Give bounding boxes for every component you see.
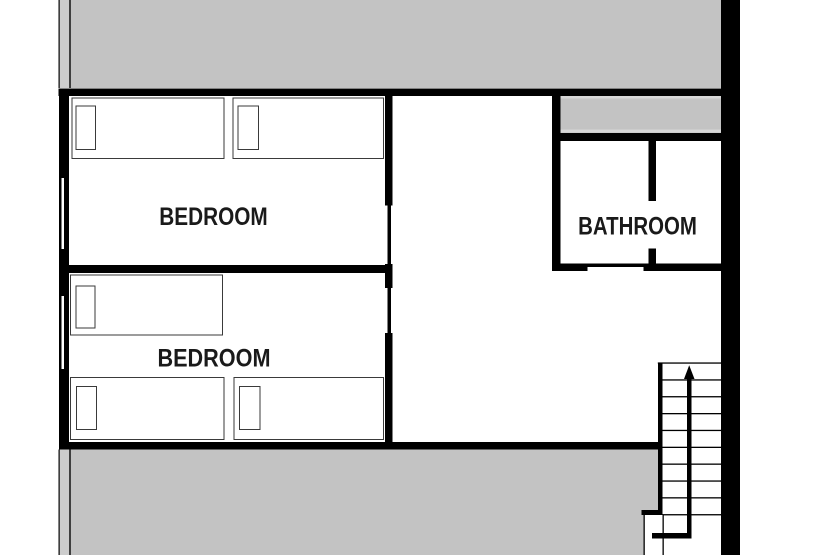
svg-text:BATHROOM: BATHROOM [578, 213, 697, 241]
svg-text:BEDROOM: BEDROOM [158, 345, 271, 373]
svg-text:BEDROOM: BEDROOM [159, 203, 268, 231]
